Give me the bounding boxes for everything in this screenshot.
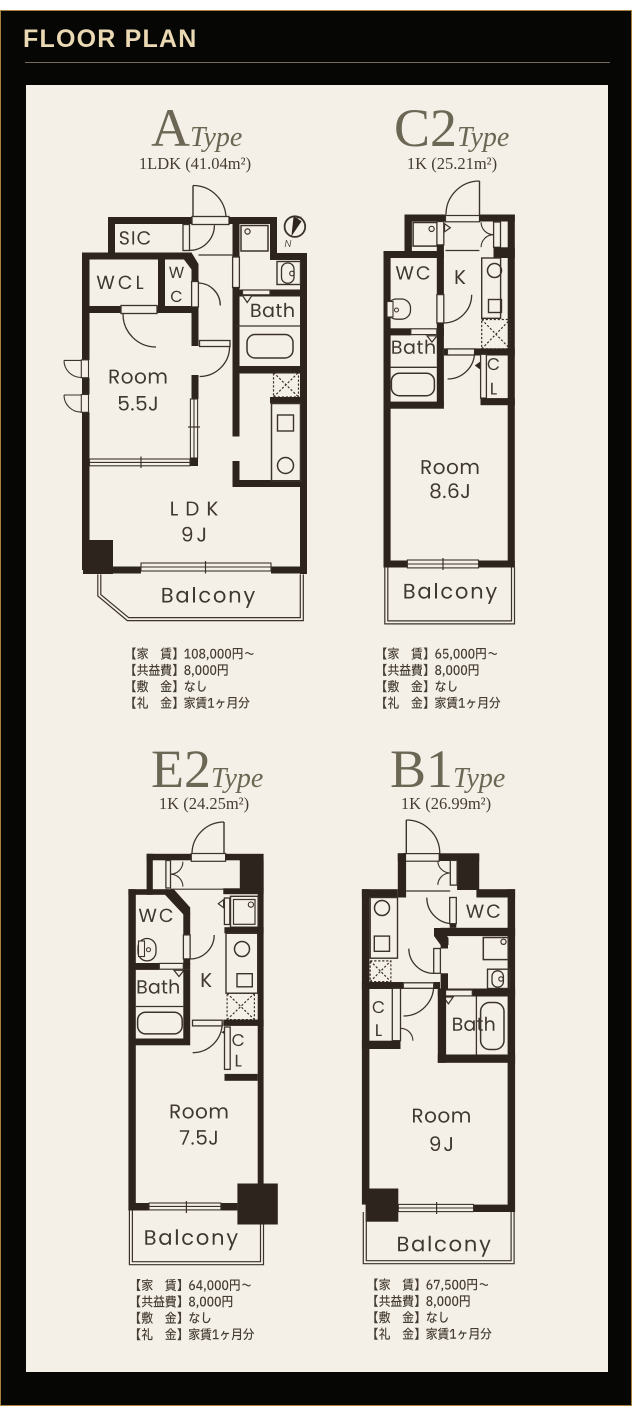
svg-text:1K (26.99m²): 1K (26.99m²) (401, 794, 491, 813)
svg-text:A: A (151, 98, 190, 158)
svg-text:B1: B1 (390, 739, 453, 799)
svg-text:Type: Type (211, 763, 263, 794)
svg-text:Type: Type (190, 122, 242, 153)
svg-text:1K (24.25m²): 1K (24.25m²) (159, 794, 249, 813)
svg-text:1LDK (41.04m²): 1LDK (41.04m²) (139, 154, 251, 173)
svg-text:Type: Type (457, 122, 509, 153)
svg-text:Type: Type (453, 763, 505, 794)
svg-text:1K (25.21m²): 1K (25.21m²) (407, 154, 497, 173)
svg-text:C2: C2 (394, 98, 457, 158)
svg-text:E2: E2 (151, 739, 211, 799)
